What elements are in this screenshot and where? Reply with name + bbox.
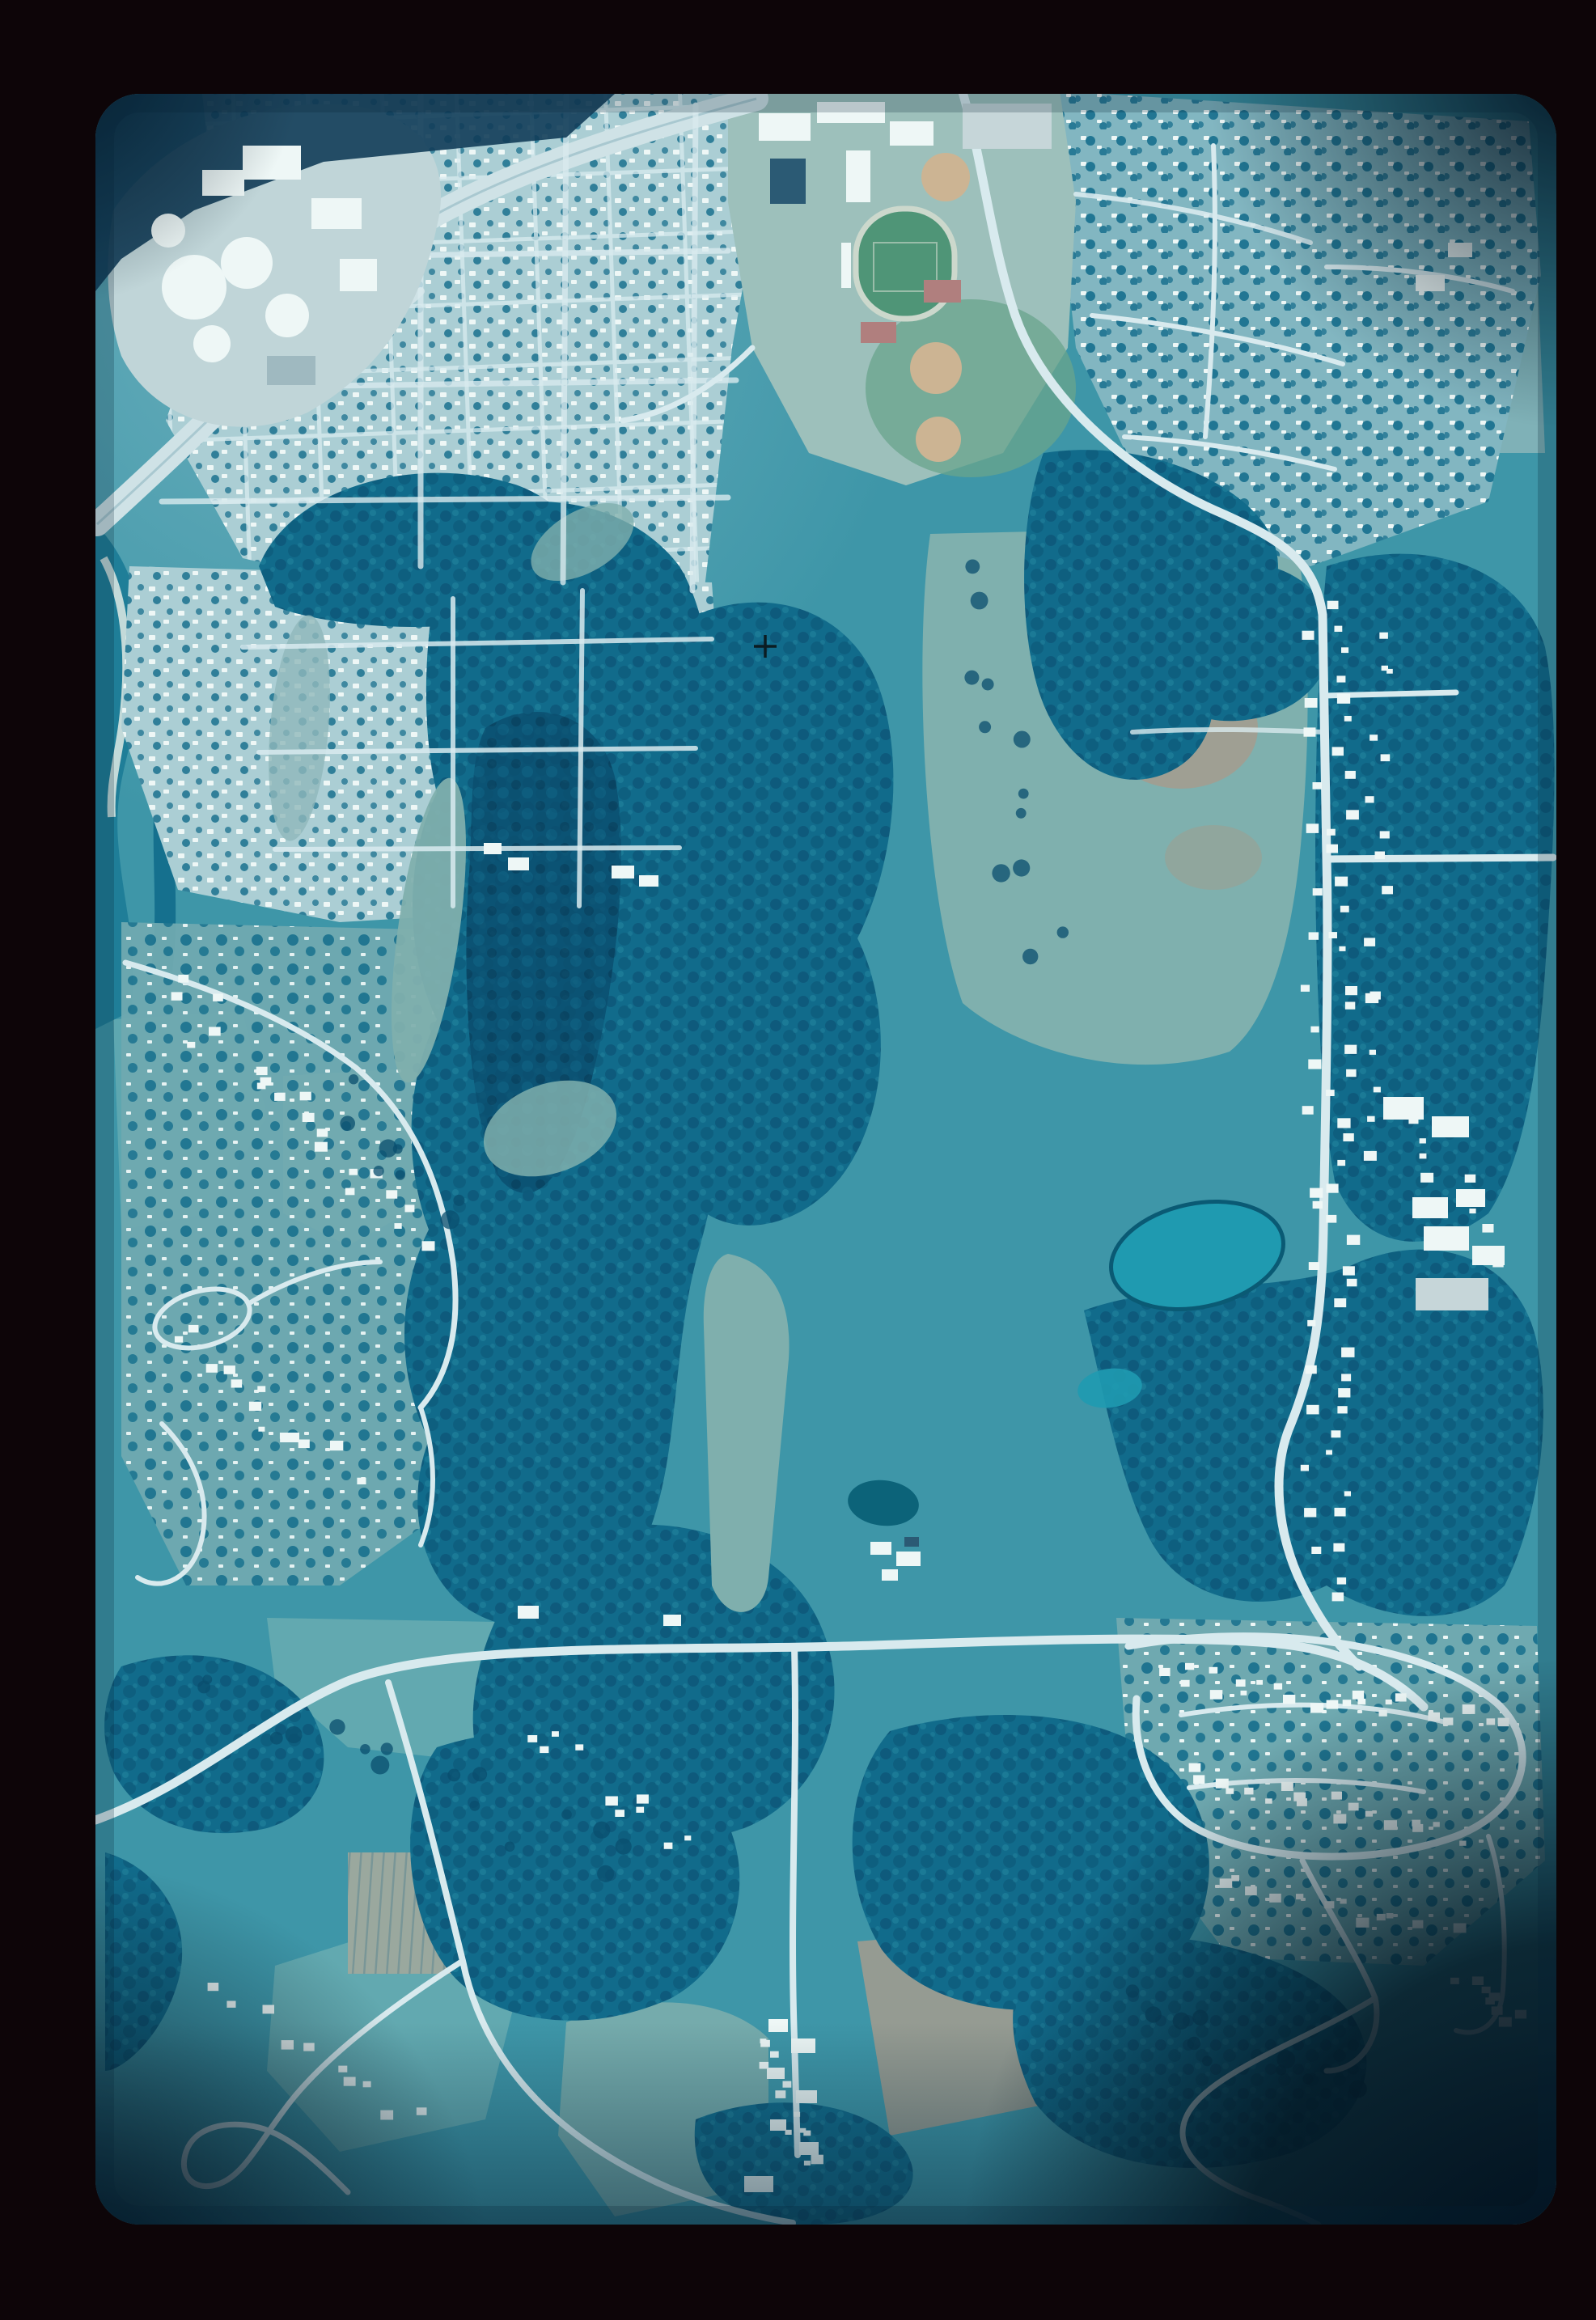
aerial-photo-slide <box>0 0 1596 2320</box>
slide-mount <box>0 0 1596 2320</box>
photo <box>95 91 1556 2226</box>
corner-vignettes <box>95 94 1556 2226</box>
